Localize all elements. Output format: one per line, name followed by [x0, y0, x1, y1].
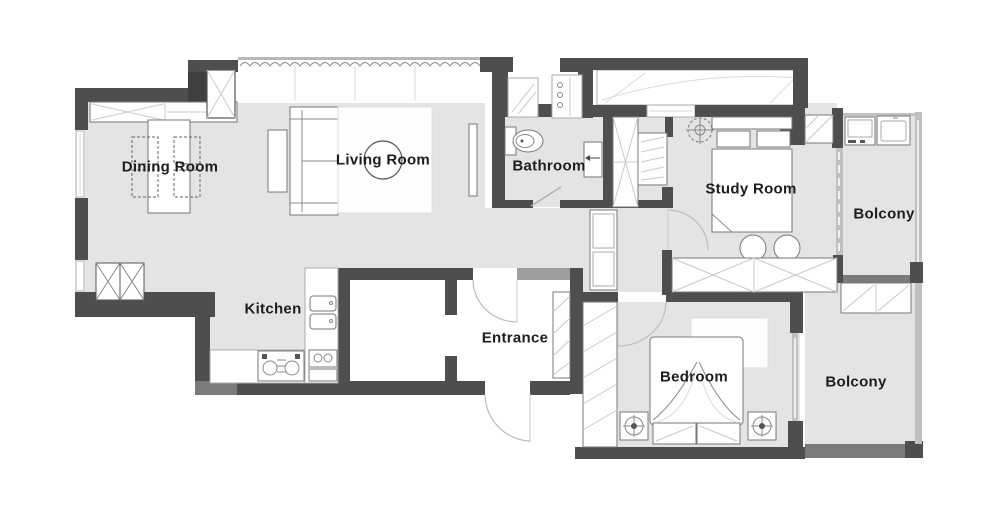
- fridge-cabinet-icon: [96, 263, 144, 300]
- top-bay-platform: [597, 70, 800, 105]
- stove-icon: [258, 351, 304, 381]
- entrance-door-opening: [473, 268, 517, 280]
- label-study-room: Study Room: [705, 181, 796, 198]
- nightstand-lamp-icon: [748, 412, 776, 440]
- label-kitchen: Kitchen: [244, 301, 301, 318]
- corner-sink-icon: [309, 350, 337, 381]
- entrance-shoe-cabinet: [553, 292, 570, 378]
- double-bed-icon: [650, 337, 743, 444]
- tv-icon: [469, 124, 477, 196]
- label-bedroom: Bedroom: [660, 369, 728, 386]
- label-balcony-bottom: Bolcony: [825, 374, 887, 391]
- living-window-band: [238, 57, 480, 103]
- corridor-closet-icon: [613, 117, 638, 207]
- label-bathroom: Bathroom: [512, 158, 585, 175]
- balcony-storage-cabinet: [841, 283, 911, 313]
- label-dining-room: Dining Room: [122, 159, 219, 176]
- label-entrance: Entrance: [482, 330, 549, 347]
- utility-cabinet: [552, 75, 582, 118]
- washing-machine-icon: [845, 117, 875, 145]
- study-corner-closet: [805, 115, 833, 143]
- main-entry-door-arc: [485, 394, 530, 442]
- label-balcony-top: Bolcony: [853, 206, 915, 223]
- desk-icon: [672, 258, 837, 292]
- bathroom-window: [508, 78, 538, 117]
- hall-cabinet: [590, 210, 617, 290]
- laundry-area: [845, 116, 910, 145]
- corridor-shelves-icon: [638, 133, 667, 185]
- bedroom-wardrobe-icon: [583, 302, 617, 447]
- label-living-room: Living Room: [336, 152, 430, 169]
- floor-plan: Dining Room Living Room Bathroom Study R…: [0, 0, 1000, 506]
- structural-column-icon: [207, 70, 235, 118]
- vanity-sink-icon: [584, 142, 602, 177]
- sofa-icon: [290, 107, 338, 215]
- laundry-sink-icon: [877, 116, 910, 145]
- console-table-icon: [268, 130, 287, 192]
- floor-plan-canvas: Dining Room Living Room Bathroom Study R…: [0, 0, 1000, 506]
- nightstand-lamp-icon: [620, 412, 648, 440]
